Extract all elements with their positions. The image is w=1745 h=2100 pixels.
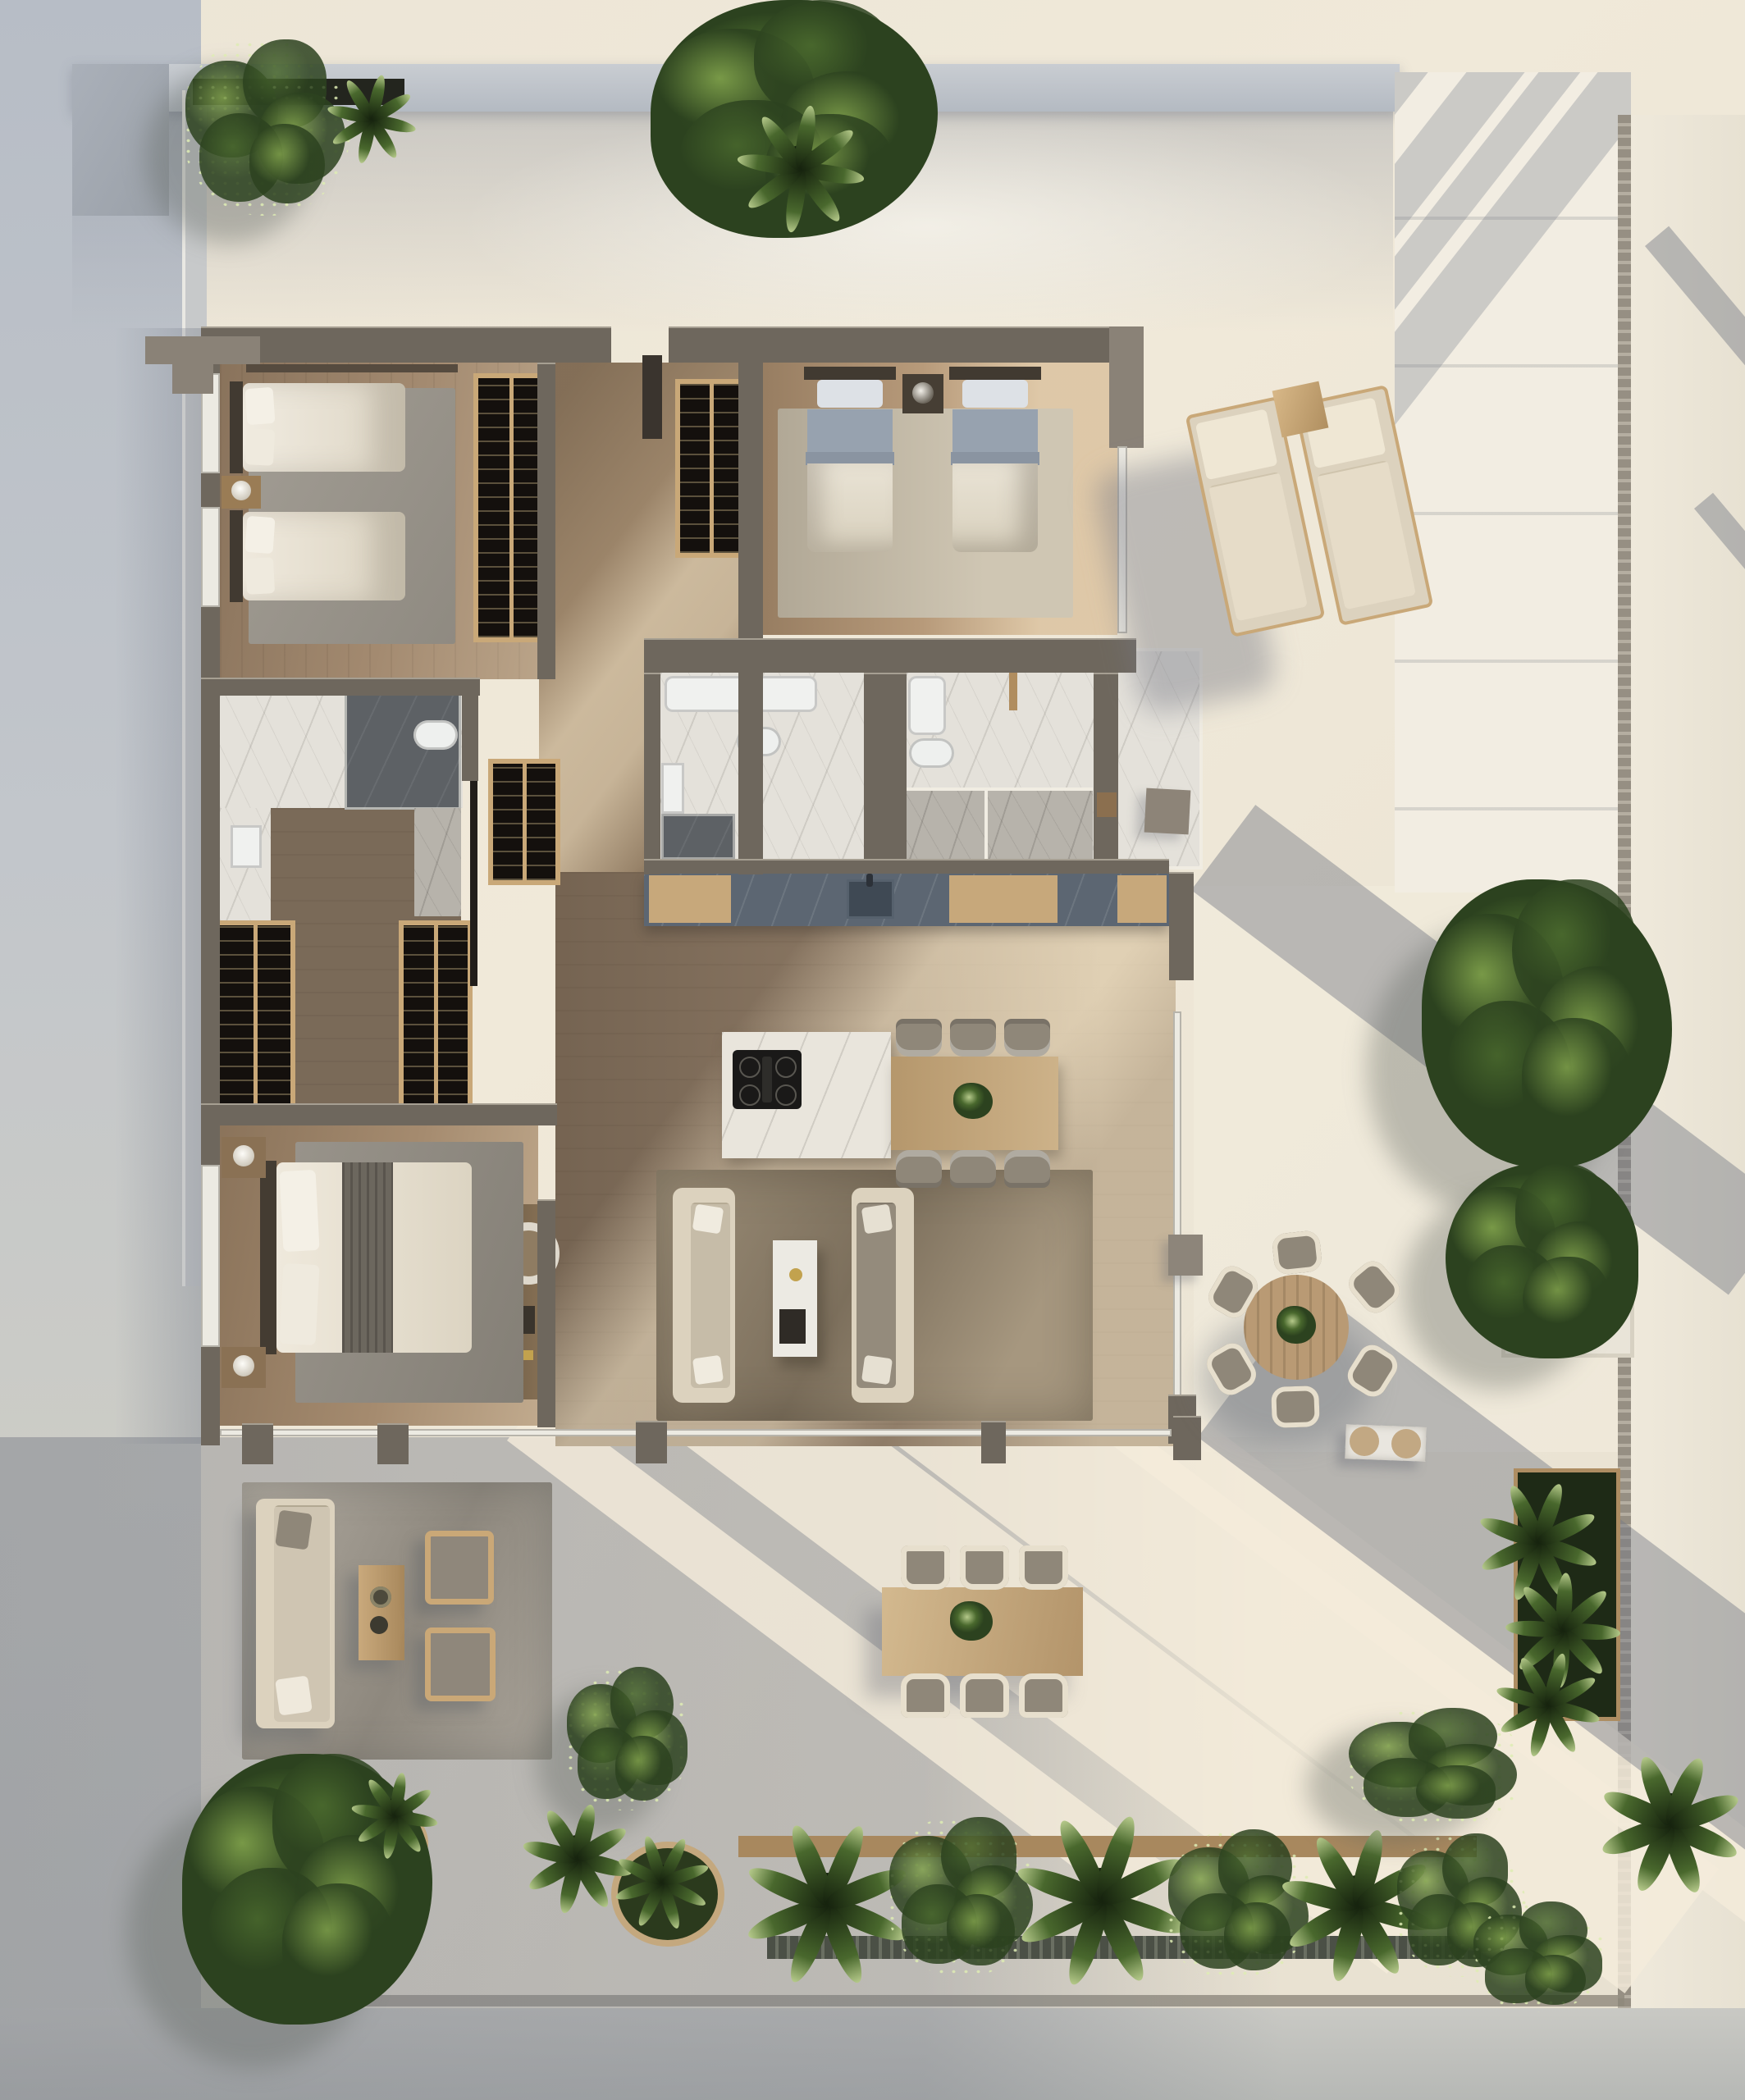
- tree-blob: [1525, 1955, 1586, 2005]
- tree-4: [1422, 879, 1672, 1168]
- chair-2: [1004, 1019, 1050, 1057]
- chair-17: [1271, 1386, 1320, 1428]
- tree-blob: [249, 124, 325, 203]
- chair-0: [896, 1019, 942, 1057]
- chair-10: [960, 1673, 1009, 1718]
- chair-12: [1272, 1230, 1323, 1276]
- tree-13: [1013, 1801, 1190, 1977]
- greenery-layer: [0, 0, 1745, 2100]
- tree-19: [1471, 1901, 1606, 2012]
- chair-9: [901, 1673, 950, 1718]
- chair-1: [950, 1019, 996, 1057]
- chair-7: [960, 1545, 1009, 1590]
- chair-11: [1019, 1673, 1068, 1718]
- chair-6: [901, 1545, 950, 1590]
- tree-blob: [1522, 1018, 1634, 1148]
- chair-4: [950, 1150, 996, 1188]
- tree-22: [1495, 1645, 1601, 1751]
- tree-3: [737, 97, 864, 224]
- tree-blob: [947, 1894, 1015, 1966]
- tree-18: [1598, 1729, 1742, 1897]
- tree-blob: [1416, 1765, 1496, 1819]
- chair-8: [1019, 1545, 1068, 1590]
- tree-blob: [1523, 1257, 1610, 1344]
- penthouse-floorplan-render: [0, 0, 1745, 2100]
- tree-10: [351, 1762, 437, 1856]
- chair-3: [896, 1150, 942, 1188]
- tree-1: [327, 67, 417, 159]
- tree-5: [1446, 1163, 1638, 1358]
- tree-9: [614, 1828, 710, 1924]
- chair-5: [1004, 1150, 1050, 1188]
- tree-0: [182, 39, 350, 216]
